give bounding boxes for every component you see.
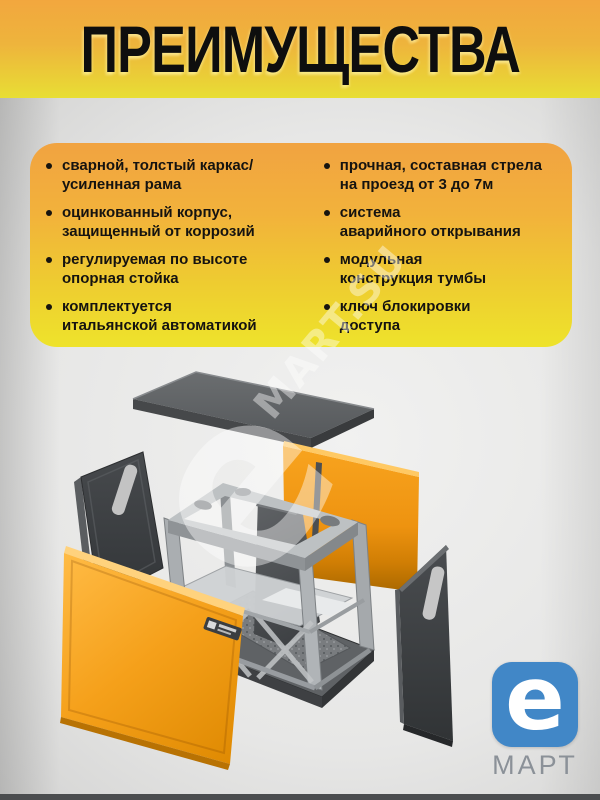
bullet-icon	[46, 257, 52, 263]
ring-hole	[235, 488, 251, 496]
advantages-left-column: сварной, толстый каркас/ усиленная рама …	[46, 156, 290, 347]
emart-logo: e МАРТ	[492, 662, 578, 781]
bullet-icon	[46, 163, 52, 169]
bullet-icon	[324, 257, 330, 263]
advantage-text: сварной, толстый каркас/ усиленная рама	[62, 156, 253, 194]
advantage-item: прочная, составная стрела на проезд от 3…	[324, 156, 556, 194]
advantage-item: модульная конструкция тумбы	[324, 250, 556, 288]
bullet-icon	[46, 210, 52, 216]
advantage-text: ключ блокировки доступа	[340, 297, 471, 335]
advantage-text: модульная конструкция тумбы	[340, 250, 486, 288]
poster: ПРЕИМУЩЕСТВА сварной, толстый каркас/ ус…	[0, 0, 600, 800]
top-lid	[133, 372, 374, 448]
advantage-item: ключ блокировки доступа	[324, 297, 556, 335]
emart-brand-text: МАРТ	[492, 750, 578, 781]
bullet-icon	[324, 210, 330, 216]
advantages-right-column: прочная, составная стрела на проезд от 3…	[324, 156, 556, 347]
bullet-icon	[46, 304, 52, 310]
emart-logo-badge: e	[492, 662, 578, 747]
advantage-item: регулируемая по высоте опорная стойка	[46, 250, 290, 288]
advantage-text: регулируемая по высоте опорная стойка	[62, 250, 247, 288]
advantage-text: система аварийного открывания	[340, 203, 521, 241]
advantage-item: система аварийного открывания	[324, 203, 556, 241]
advantage-text: комплектуется итальянской автоматикой	[62, 297, 257, 335]
advantage-item: сварной, толстый каркас/ усиленная рама	[46, 156, 290, 194]
bullet-icon	[324, 304, 330, 310]
advantage-text: оцинкованный корпус, защищенный от корро…	[62, 203, 255, 241]
advantage-item: комплектуется итальянской автоматикой	[46, 297, 290, 335]
advantage-item: оцинкованный корпус, защищенный от корро…	[46, 203, 290, 241]
advantage-text: прочная, составная стрела на проезд от 3…	[340, 156, 542, 194]
bullet-icon	[324, 163, 330, 169]
advantages-card: сварной, толстый каркас/ усиленная рама …	[30, 143, 572, 347]
bottom-strip	[0, 794, 600, 800]
emart-logo-e: e	[505, 655, 565, 743]
